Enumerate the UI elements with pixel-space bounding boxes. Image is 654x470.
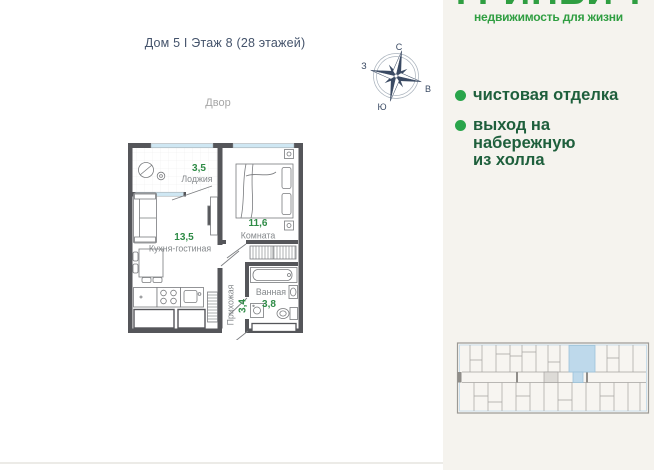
bedroom-name: Комната	[241, 231, 276, 241]
compass-north-label: С	[396, 42, 403, 52]
compass-east-label: В	[425, 84, 431, 94]
compass-south-label: Ю	[377, 102, 386, 112]
brand-tagline: недвижимость для жизни	[443, 10, 654, 24]
brand-logo-text: ГРИНВИЧ	[443, 0, 654, 10]
compass-star	[365, 45, 427, 107]
floor-minimap	[456, 338, 652, 418]
feature-finishing: чистовая отделка	[455, 87, 645, 104]
feature-finishing-text: чистовая отделка	[473, 87, 618, 104]
hallway-area: 3,4	[238, 299, 249, 313]
kitchen-living-furniture	[133, 193, 218, 328]
compass-west-label: З	[361, 61, 366, 71]
bathroom-name: Ванная	[256, 287, 286, 297]
compass-rose-icon: С З В Ю	[350, 32, 440, 122]
footer-divider	[0, 462, 443, 464]
bathroom-area: 3,8	[262, 299, 276, 310]
kitchen-living-name: Кухня-гостиная	[149, 244, 211, 254]
apartment-floorplan: 3,5 Лоджия 13,5 Кухня-гостиная 11,6 Комн…	[125, 140, 310, 340]
loggia-area: 3,5	[192, 163, 206, 174]
info-panel: ГРИНВИЧ недвижимость для жизни чистовая …	[443, 0, 654, 470]
feature-embankment-text: выход на набережную из холла	[473, 117, 575, 169]
loggia-name: Лоджия	[181, 174, 212, 184]
bedroom-area: 11,6	[249, 218, 268, 229]
bullet-icon	[455, 120, 466, 131]
feature-embankment: выход на набережную из холла	[455, 117, 645, 169]
bullet-icon	[455, 90, 466, 101]
feature-list: чистовая отделка выход на набережную из …	[455, 87, 645, 182]
hallway-name: Прихожая	[226, 284, 236, 325]
kitchen-living-area: 13,5	[174, 232, 194, 243]
minimap-elevator-core	[544, 372, 558, 383]
brand-logo: ГРИНВИЧ	[443, 0, 654, 10]
courtyard-label: Двор	[188, 97, 248, 109]
page-title: Дом 5 I Этаж 8 (28 этажей)	[105, 36, 345, 50]
